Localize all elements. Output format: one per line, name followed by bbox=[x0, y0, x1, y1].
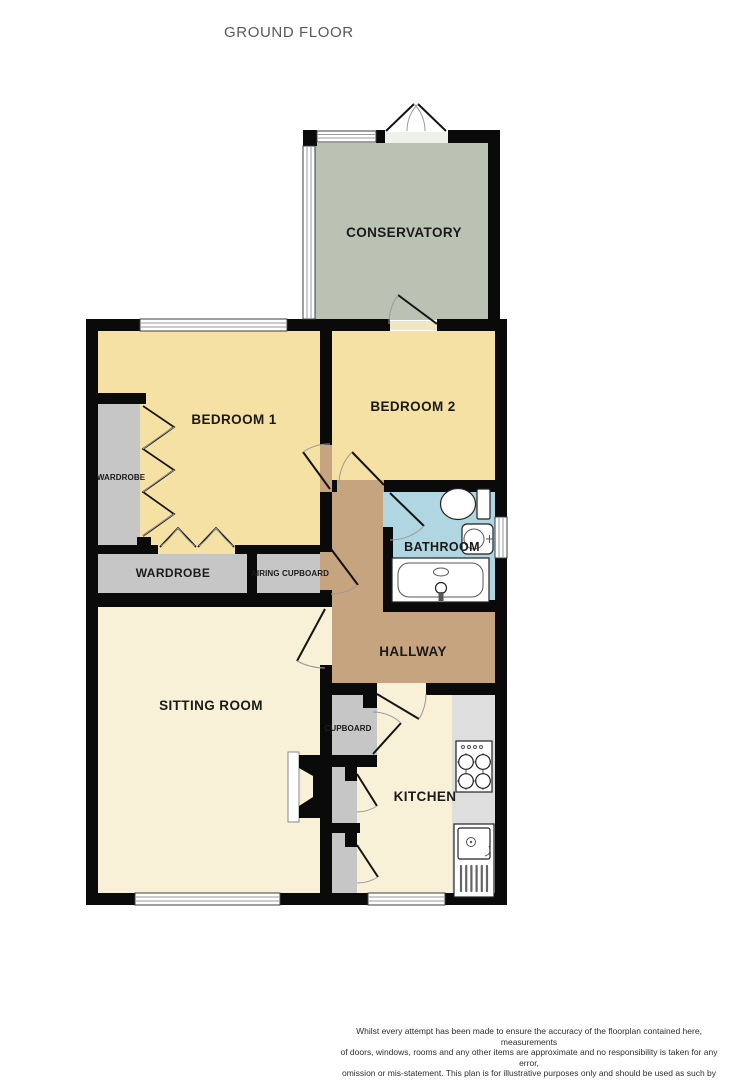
wardrobe-side-label: WARDROBE bbox=[97, 473, 146, 482]
bathroom-window bbox=[495, 517, 507, 558]
wardrobe-label: WARDROBE bbox=[136, 566, 211, 580]
toilet bbox=[441, 489, 491, 520]
threshold-french-doors bbox=[384, 132, 448, 143]
bedroom2-label: BEDROOM 2 bbox=[370, 399, 455, 414]
conservatory-label: CONSERVATORY bbox=[346, 225, 462, 240]
bathroom-label: BATHROOM bbox=[404, 540, 480, 554]
sitting-room-window bbox=[135, 893, 280, 905]
threshold-bedroom2 bbox=[337, 480, 384, 492]
kitchen-window bbox=[368, 893, 445, 905]
conservatory-top-window bbox=[317, 131, 376, 142]
hearth bbox=[288, 752, 299, 822]
disclaimer-line: of doors, windows, rooms and any other i… bbox=[338, 1047, 720, 1068]
disclaimer-line: omission or mis-statement. This plan is … bbox=[338, 1068, 720, 1080]
kitchen-label: KITCHEN bbox=[394, 789, 457, 804]
hallway-label: HALLWAY bbox=[379, 644, 447, 659]
floorplan-page: GROUND FLOOR bbox=[0, 0, 741, 1080]
bathtub bbox=[392, 558, 489, 602]
hallway-floor-narrow bbox=[332, 492, 383, 612]
disclaimer: Whilst every attempt has been made to en… bbox=[338, 1026, 720, 1080]
threshold-kitchen bbox=[377, 683, 426, 695]
cupboard-label: CUPBOARD bbox=[324, 724, 371, 733]
bedroom1-label: BEDROOM 1 bbox=[191, 412, 276, 427]
bath-tap bbox=[439, 592, 444, 601]
threshold-conservatory bbox=[390, 321, 437, 330]
conservatory-side-window bbox=[303, 146, 315, 319]
kitchen-sink bbox=[454, 824, 494, 897]
bedroom1-window bbox=[140, 319, 287, 331]
floorplan-canvas: CONSERVATORY BEDROOM 1 BEDROOM 2 BATHROO… bbox=[0, 0, 741, 1080]
disclaimer-line: Whilst every attempt has been made to en… bbox=[338, 1026, 720, 1047]
sitting-room-label: SITTING ROOM bbox=[159, 698, 263, 713]
airing-cupboard-label: AIRING CUPBOARD bbox=[251, 569, 329, 578]
hob bbox=[456, 741, 492, 792]
sink-drain bbox=[470, 841, 472, 843]
sitting-room-floor bbox=[98, 607, 320, 893]
threshold-bathroom bbox=[383, 492, 393, 527]
